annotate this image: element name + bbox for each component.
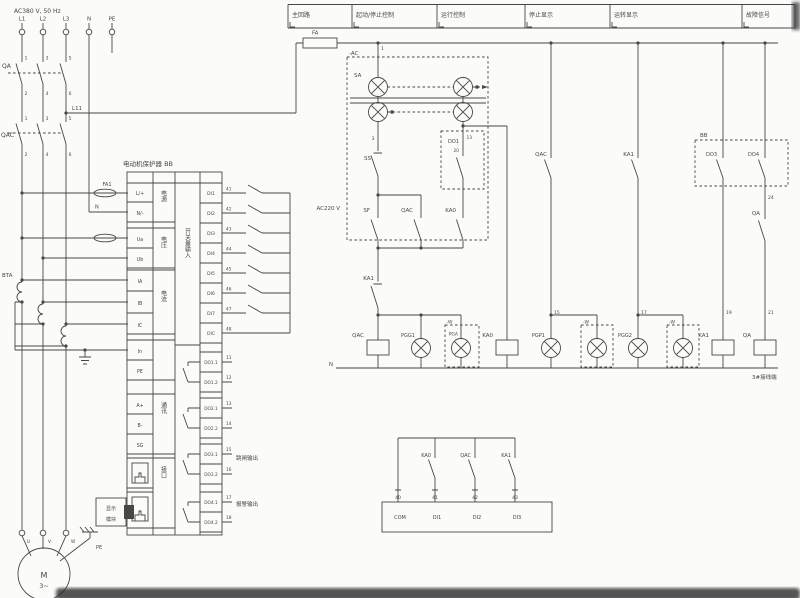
fb-di2: DI2 <box>473 515 482 521</box>
ka0-coil-label: KA0 <box>482 333 493 339</box>
phase-l1-label: L1 <box>19 17 26 23</box>
header-strip: 主回路 起动/停止控制 运行控制 停止显示 运转显示 故障信号 <box>288 5 795 29</box>
di-t47: 47 <box>226 307 232 313</box>
qac-coil-label: QAC <box>352 333 364 339</box>
cell-ua: Ua <box>137 237 144 243</box>
do-t18: 18 <box>226 515 232 521</box>
di-t48: 48 <box>226 327 232 333</box>
remote-lamp-box-1 <box>445 325 479 367</box>
cell-aplus: A+ <box>136 403 143 409</box>
qa-t5: 5 <box>69 56 72 62</box>
cell-dic: DIC <box>207 331 215 337</box>
pgg1-lamp-label: PGG1 <box>401 333 415 339</box>
l11-label: L11 <box>72 106 82 112</box>
supply-label: AC380 V, 50 Hz <box>14 8 61 15</box>
fb-t42: 42 <box>472 495 478 501</box>
group-comm: 通讯 <box>160 401 167 415</box>
cell-di1: DI1 <box>207 191 215 197</box>
do4-contact-label: DO4 <box>748 152 759 158</box>
fb-t40: 40 <box>395 495 401 501</box>
header-box-2: 起动/停止控制 <box>356 11 394 19</box>
cell-sg: SG <box>137 443 144 449</box>
di-contact-fan <box>222 185 290 333</box>
ct-label: BTA <box>2 273 13 279</box>
do-t16: 16 <box>226 467 232 473</box>
qac-aux-label: QAC <box>401 208 413 214</box>
qa-t6: 6 <box>69 91 72 97</box>
ka1-nc-label: KA1 <box>363 276 374 282</box>
w1-label: -W <box>447 320 453 326</box>
main-power-circuit <box>8 23 778 598</box>
ka0-aux-label: KA0 <box>445 208 456 214</box>
ct-ground-symbol <box>79 348 91 364</box>
qac-coil <box>367 340 389 355</box>
group-power: 电源 <box>160 189 167 203</box>
cell-di5: DI5 <box>207 271 215 277</box>
do1-term: 20 <box>454 148 460 154</box>
junction-box-label: 3#接线端 <box>752 373 777 381</box>
motor-u: U <box>27 539 30 545</box>
selector-lamp-1 <box>369 78 388 97</box>
cell-pe: PE <box>137 369 143 375</box>
motor <box>18 527 98 598</box>
cell-do11: DO1.1 <box>204 360 218 366</box>
cell-di7: DI7 <box>207 311 215 317</box>
di-t42: 42 <box>226 207 232 213</box>
selector-lamp-3 <box>369 103 388 122</box>
cell-do42: DO4.2 <box>204 520 218 526</box>
supply-terminals <box>19 23 115 35</box>
pga-lamp-label: PGA <box>449 332 459 338</box>
selector-label: SA <box>354 73 362 79</box>
cell-di2: DI2 <box>207 211 215 217</box>
do-t11: 11 <box>226 355 232 361</box>
header-box-6: 故障信号 <box>746 11 770 19</box>
term-17: 17 <box>641 310 647 316</box>
di-t46: 46 <box>226 287 232 293</box>
current-transformers <box>15 278 128 364</box>
di-t44: 44 <box>226 247 232 253</box>
motor-protection-schematic: 主回路 起动/停止控制 运行控制 停止显示 运转显示 故障信号 <box>0 0 800 598</box>
comm-socket-1 <box>132 463 148 483</box>
pga-lamp <box>452 339 471 358</box>
text-layer: AC380 V, 50 HzL1L2L3NPEQA135246QAC135246… <box>1 8 777 590</box>
contactor-label: QAC <box>1 132 14 139</box>
qac-display-contact-label: QAC <box>535 152 547 158</box>
breaker-label: QA <box>2 63 12 70</box>
group-current: 电流 <box>160 289 167 303</box>
header-box-4: 停止显示 <box>529 11 553 19</box>
comm-socket-2 <box>132 497 148 521</box>
header-box-5: 运转显示 <box>614 11 638 19</box>
stop-display-branch <box>542 43 614 368</box>
phase-l2-label: L2 <box>40 17 47 23</box>
cell-do22: DO2.2 <box>204 426 218 432</box>
module-line1: 显示 <box>106 506 116 512</box>
term-13: 13 <box>467 135 473 141</box>
qac-t5: 5 <box>69 116 72 122</box>
qa-coil-label: QA <box>743 333 751 339</box>
ka1-coil-label: KA1 <box>698 333 709 339</box>
fb-com: COM <box>394 515 406 521</box>
term-3: 3 <box>372 136 375 142</box>
fa-fuse-label: FA <box>312 31 319 37</box>
fb-t41: 41 <box>432 495 438 501</box>
di-t45: 45 <box>226 267 232 273</box>
do-relay-contacts <box>183 362 232 522</box>
fb-qac-label: QAC <box>460 453 471 459</box>
term-15: 15 <box>554 310 560 316</box>
cell-do32: DO3.2 <box>204 472 218 478</box>
cell-bminus: B- <box>137 423 142 429</box>
run-display-branch <box>629 43 700 368</box>
pgg2-lamp <box>629 339 648 358</box>
group-di: 开关量输入 <box>184 228 191 258</box>
qac-t1: 1 <box>25 116 28 122</box>
fb-ka0-label: KA0 <box>421 453 431 459</box>
motor-v: V <box>48 539 51 545</box>
qac-t4: 4 <box>46 152 49 158</box>
group-voltage: 电压 <box>160 235 167 249</box>
do-t13: 13 <box>226 401 232 407</box>
alarm-output-label: 报警输出 <box>236 500 258 508</box>
trip-output-label: 跳闸输出 <box>236 454 258 462</box>
cell-di3: DI3 <box>207 231 215 237</box>
qa-t3: 3 <box>46 56 49 62</box>
do1-contact-label: DO1 <box>448 139 459 145</box>
do-t17: 17 <box>226 495 232 501</box>
contactor-qac-poles <box>8 84 66 144</box>
module-plug <box>124 505 134 519</box>
fb-t43: 43 <box>512 495 518 501</box>
w2-label: -W <box>583 320 589 326</box>
cell-ia: IA <box>138 279 143 285</box>
qa-t4: 4 <box>46 91 49 97</box>
pe-label: PE <box>109 17 116 23</box>
ka1-coil <box>712 340 734 355</box>
term-1: 1 <box>381 46 384 52</box>
do-t14: 14 <box>226 421 232 427</box>
fb-di1: DI1 <box>433 515 442 521</box>
selector-arrow <box>482 85 488 89</box>
motor-pe-symbol <box>60 527 98 561</box>
control-circuit <box>336 41 788 532</box>
pgg1-lamp <box>412 339 431 358</box>
pgp2-lamp <box>588 339 607 358</box>
cell-di6: DI6 <box>207 291 215 297</box>
fa1-fuse-label: FA1 <box>102 182 111 188</box>
pgg3-lamp <box>674 339 693 358</box>
protection-relay-block: 电动机保护器 BB <box>96 159 290 535</box>
cell-do31: DO3.1 <box>204 452 218 458</box>
motor-3ph: 3~ <box>39 582 49 590</box>
selector-lamp-4 <box>454 103 473 122</box>
qa-t1: 1 <box>25 56 28 62</box>
cell-di4: DI4 <box>207 251 215 257</box>
selector-lamp-2 <box>454 78 473 97</box>
do3-contact-label: DO3 <box>706 152 717 158</box>
breaker-qa <box>8 35 66 84</box>
cell-do12: DO1.2 <box>204 380 218 386</box>
fault-branches <box>695 43 788 368</box>
di-t41: 41 <box>226 187 232 193</box>
start-button-label: SF <box>363 208 370 214</box>
do-t12: 12 <box>226 375 232 381</box>
w3-label: -W <box>669 320 675 326</box>
n-wire-label: N <box>95 205 99 211</box>
pgg2-lamp-label: PGG2 <box>618 333 632 339</box>
qa-t2: 2 <box>25 91 28 97</box>
cell-do41: DO4.1 <box>204 500 218 506</box>
term-19: 19 <box>726 310 732 316</box>
phase-l3-label: L3 <box>63 17 70 23</box>
cell-do21: DO2.1 <box>204 406 218 412</box>
term-24: 24 <box>768 195 774 201</box>
fb-di3: DI3 <box>513 515 522 521</box>
cell-n: N/- <box>137 211 144 217</box>
bb-output-contacts-box <box>695 140 788 186</box>
stop-button-label: SS <box>364 156 371 162</box>
module-line2: 模块 <box>106 516 116 523</box>
ac220-label: AC220 V <box>316 206 340 212</box>
selector-switch-sa <box>350 43 488 122</box>
cell-l: L/+ <box>136 191 144 197</box>
cell-in: In <box>138 349 142 355</box>
qa-trip-coil <box>754 340 776 355</box>
do-t15: 15 <box>226 447 232 453</box>
fb-ka1-label: KA1 <box>501 453 511 459</box>
cell-ic: IC <box>138 323 143 329</box>
motor-pe-label: PE <box>96 545 102 551</box>
term-21: 21 <box>768 310 774 316</box>
bottom-smear <box>56 588 800 598</box>
bb-box-label: BB <box>700 133 708 139</box>
rail-n-label: N <box>329 362 333 368</box>
header-box-3: 运行控制 <box>441 11 465 19</box>
qa-contact-label: QA <box>752 211 760 217</box>
relay-supply-taps <box>20 35 128 260</box>
pgp1-lamp <box>542 339 561 358</box>
motor-m: M <box>41 571 48 580</box>
stop-start-chain <box>367 122 518 369</box>
qac-t6: 6 <box>69 152 72 158</box>
group-port: 接口 <box>160 465 167 479</box>
di-t43: 43 <box>226 227 232 233</box>
ka0-coil <box>496 340 518 355</box>
right-edge-smear <box>792 2 800 30</box>
neutral-label: N <box>87 17 91 23</box>
header-box-1: 主回路 <box>292 11 310 19</box>
relay-block-title: 电动机保护器 BB <box>123 159 173 168</box>
phase-runs <box>22 144 66 530</box>
cell-ub: Ub <box>137 257 144 263</box>
ac-box-label: -AC <box>349 51 359 57</box>
cell-ib: IB <box>138 301 143 307</box>
schematic-page: 主回路 起动/停止控制 运行控制 停止显示 运转显示 故障信号 <box>0 0 800 598</box>
qac-t2: 2 <box>25 152 28 158</box>
ka1-display-contact-label: KA1 <box>623 152 634 158</box>
pgp1-lamp-label: PGP1 <box>532 333 545 339</box>
qac-t3: 3 <box>46 116 49 122</box>
motor-w: W <box>71 539 76 545</box>
